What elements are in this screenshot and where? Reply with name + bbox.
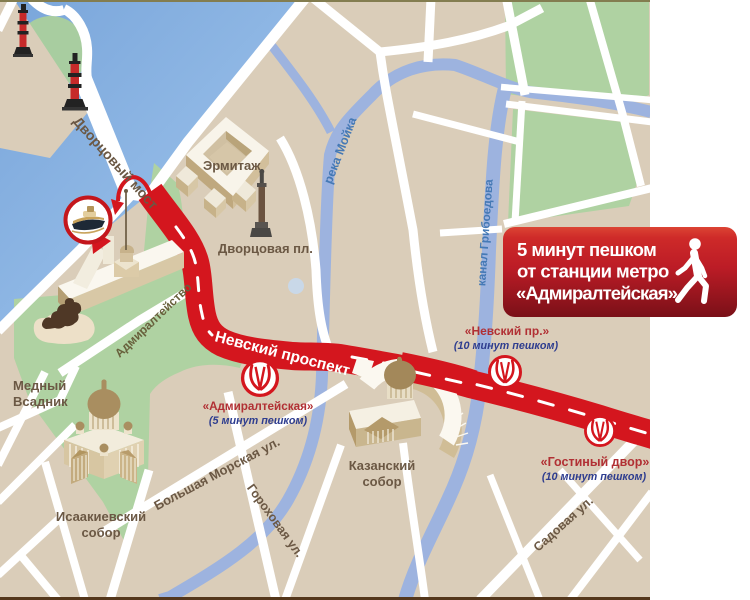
svg-text:«Гостиный двор»: «Гостиный двор» xyxy=(541,455,650,469)
svg-text:5 минут пешком: 5 минут пешком xyxy=(517,239,656,260)
svg-text:Казанский: Казанский xyxy=(349,458,416,473)
svg-text:Всадник: Всадник xyxy=(13,394,68,409)
svg-text:Медный: Медный xyxy=(13,378,66,393)
svg-text:(10 минут пешком): (10 минут пешком) xyxy=(542,471,647,483)
svg-text:Эрмитаж: Эрмитаж xyxy=(203,158,261,173)
svg-text:«Невский пр.»: «Невский пр.» xyxy=(465,324,550,338)
svg-text:Дворцовая пл.: Дворцовая пл. xyxy=(218,241,313,256)
svg-text:собор: собор xyxy=(81,525,120,540)
svg-text:Исаакиевский: Исаакиевский xyxy=(56,509,146,524)
svg-text:«Адмиралтейская»: «Адмиралтейская» xyxy=(203,400,314,413)
svg-text:собор: собор xyxy=(362,474,401,489)
svg-text:от станции метро: от станции метро xyxy=(517,261,669,282)
svg-text:«Адмиралтейская»: «Адмиралтейская» xyxy=(516,283,678,304)
svg-text:(10 минут пешком): (10 минут пешком) xyxy=(454,340,559,352)
svg-text:(5 минут пешком): (5 минут пешком) xyxy=(209,415,308,427)
